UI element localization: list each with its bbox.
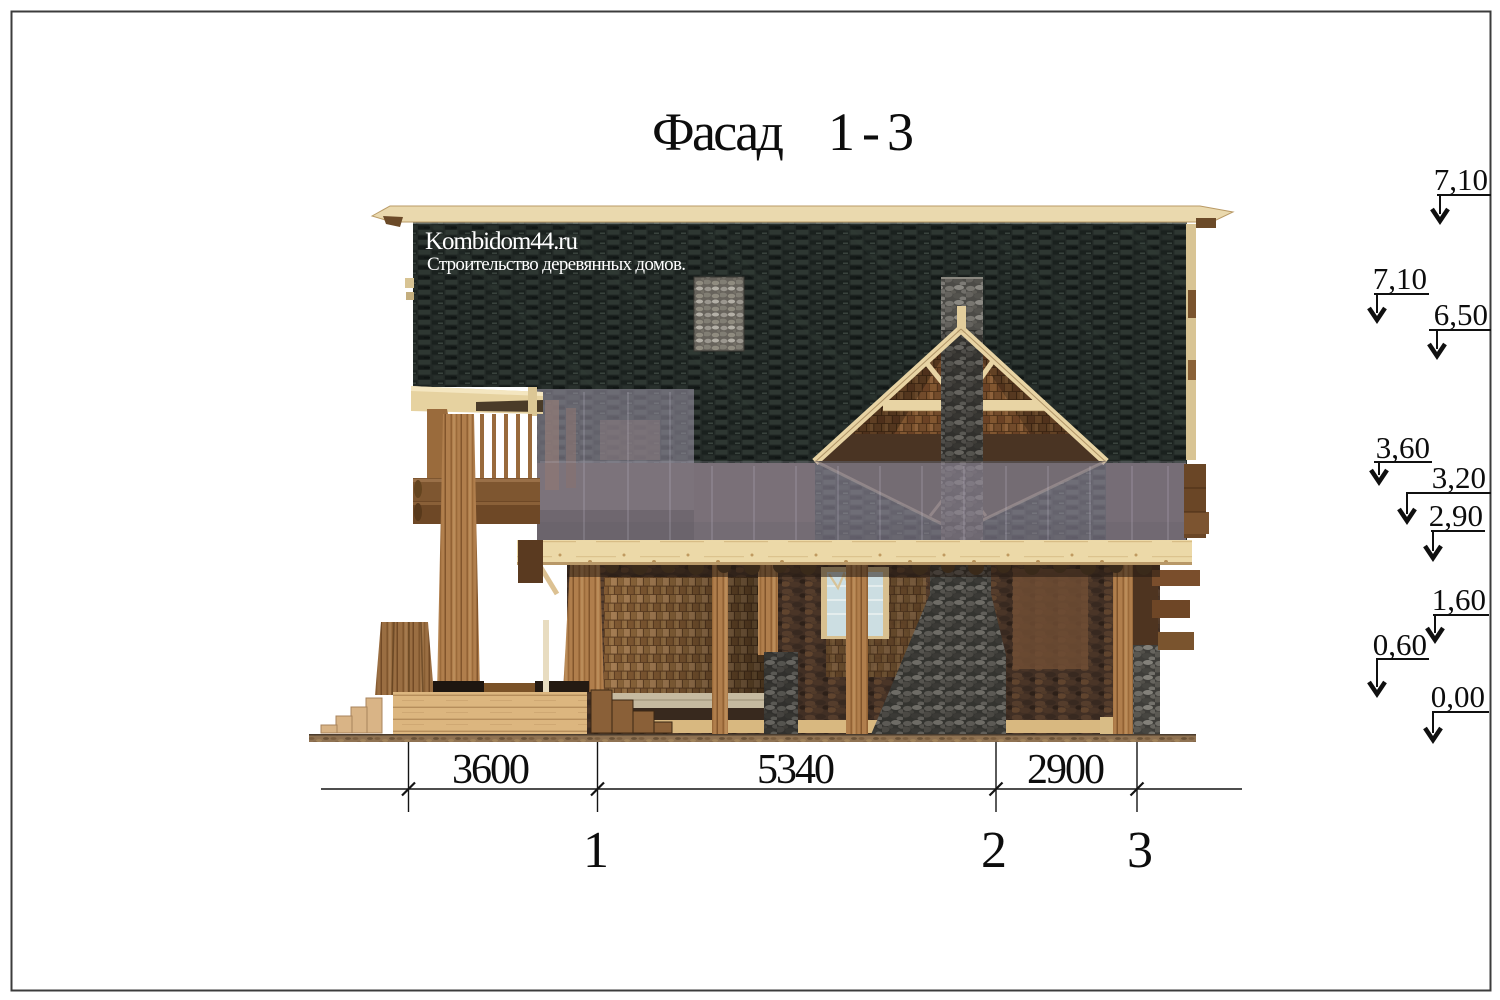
svg-text:5340: 5340 (757, 747, 835, 793)
svg-text:7,10: 7,10 (1373, 261, 1427, 296)
svg-text:Фасад: Фасад (652, 102, 784, 162)
svg-text:2900: 2900 (1027, 747, 1105, 793)
svg-text:1,60: 1,60 (1432, 582, 1486, 617)
svg-text:1 - 3: 1 - 3 (828, 102, 914, 162)
svg-text:0,00: 0,00 (1431, 679, 1485, 714)
svg-text:3,20: 3,20 (1432, 460, 1486, 495)
svg-text:Строительство деревянных домов: Строительство деревянных домов. (427, 254, 686, 275)
svg-text:7,10: 7,10 (1434, 162, 1488, 197)
svg-text:6,50: 6,50 (1434, 297, 1488, 332)
svg-text:1: 1 (583, 822, 609, 879)
svg-text:Kombidom44.ru: Kombidom44.ru (425, 228, 579, 255)
svg-text:3600: 3600 (452, 747, 530, 793)
svg-text:2: 2 (981, 822, 1007, 879)
svg-text:3: 3 (1127, 822, 1153, 879)
svg-text:2,90: 2,90 (1429, 498, 1483, 533)
svg-text:0,60: 0,60 (1373, 627, 1427, 662)
svg-text:3,60: 3,60 (1376, 430, 1430, 465)
